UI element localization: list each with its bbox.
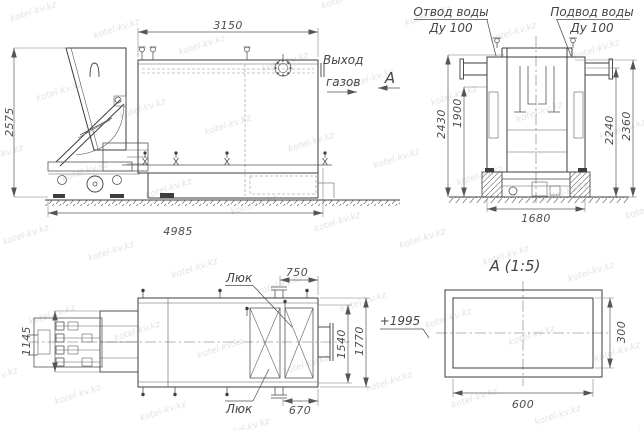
dim-front-width: 3150 bbox=[213, 19, 243, 32]
section-title: А (1:5) bbox=[489, 257, 541, 275]
hatch-label-top: Люк bbox=[225, 271, 253, 285]
section-arrow-label: А bbox=[384, 69, 395, 87]
gas-outlet-label-1: Выход bbox=[323, 53, 363, 67]
water-supply-label-2: Ду 100 bbox=[569, 21, 614, 35]
dim-section-300: 300 bbox=[615, 321, 628, 343]
dim-plan-1770: 1770 bbox=[353, 326, 366, 356]
dim-front-length: 4985 bbox=[163, 225, 193, 238]
technical-drawing-page: kotel-kv.kz kotel-kv.kz bbox=[0, 0, 644, 430]
ground-front bbox=[45, 200, 400, 206]
elevation-label: +1995 bbox=[380, 314, 421, 328]
dim-section-600: 600 bbox=[512, 398, 534, 411]
dim-plan-1145: 1145 bbox=[20, 326, 33, 356]
dim-side-2360: 2360 bbox=[620, 111, 633, 141]
water-outlet-label-2: Ду 100 bbox=[428, 21, 473, 35]
gas-outlet-label-2: газов bbox=[326, 75, 360, 89]
water-supply-label-1: Подвод воды bbox=[550, 5, 633, 19]
dim-side-1900: 1900 bbox=[451, 98, 464, 128]
dim-front-height: 2575 bbox=[3, 107, 16, 137]
dim-plan-750: 750 bbox=[286, 266, 308, 279]
dim-plan-1540: 1540 bbox=[335, 329, 348, 359]
dim-side-2430: 2430 bbox=[435, 109, 448, 139]
hatch-label-bottom: Люк bbox=[225, 402, 253, 416]
water-outlet-label-1: Отвод воды bbox=[413, 5, 488, 19]
dim-side-1680: 1680 bbox=[521, 212, 551, 225]
dim-side-2240: 2240 bbox=[603, 115, 616, 145]
ground-side bbox=[449, 197, 629, 203]
dim-plan-670: 670 bbox=[289, 404, 311, 417]
boiler-drawing: kotel-kv.kz kotel-kv.kz bbox=[0, 0, 644, 430]
